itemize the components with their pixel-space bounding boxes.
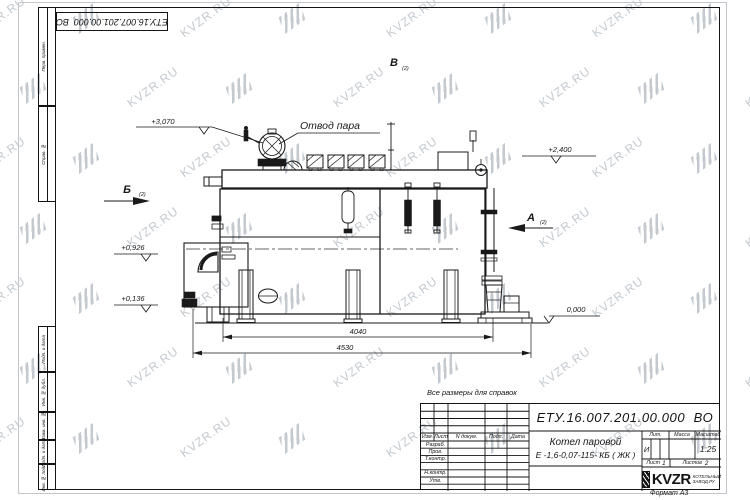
kvzr-emblem-icon (642, 471, 650, 488)
svg-text:Отвод пара: Отвод пара (300, 120, 360, 132)
manhole (258, 289, 278, 303)
sheets-value: 2 (705, 460, 709, 467)
elevation-mark-zero: 0,000 (544, 305, 600, 323)
burner-assembly (182, 243, 248, 322)
reference-note: Все размеры для справок (427, 388, 517, 397)
stamp-product-name: Котел паровой Е -1,6-0,07-115- КБ ( ЖК ) (529, 431, 642, 466)
svg-text:(2): (2) (139, 192, 146, 198)
dim-4040-value: 4040 (350, 327, 368, 336)
view-arrow-a: А (2) (508, 212, 553, 232)
svg-text:Б: Б (123, 184, 131, 196)
drawing-sheet: { "page": { "format_note": "Формат А3", … (0, 0, 750, 500)
stamp-row-tkontr: Т.контр. (421, 455, 448, 462)
steam-outlet-label: Отвод пара (279, 120, 380, 144)
feed-pump-unit (478, 276, 532, 323)
svg-text:+0,136: +0,136 (121, 294, 145, 303)
kvzr-sub-line2: ЗАВОД.РУ (693, 479, 715, 484)
stamp-lit-label: Лит. (642, 431, 669, 439)
elevation-mark-drum: +2,400 (522, 145, 596, 163)
stamp-mass-label: Масса (669, 431, 695, 439)
stamp-row-prov: Пров. (421, 448, 448, 455)
sheet-label: Лист (646, 460, 660, 466)
view-mark-v: В (2) (390, 57, 409, 72)
svg-text:0,000: 0,000 (567, 305, 587, 314)
level-indicators (342, 183, 441, 233)
elevation-mark-axis: +0,926 (114, 243, 158, 261)
stamp-sheets-cell: Листов 2 (670, 459, 721, 467)
view-arrow-b: Б (2) (104, 184, 150, 205)
svg-text:В: В (390, 57, 398, 69)
stamp-row-utv: Утв. (421, 477, 448, 484)
stamp-row-nkontr: Н.контр. (421, 470, 448, 477)
stamp-row-razrab: Разраб. (421, 441, 448, 448)
svg-text:(2): (2) (540, 220, 547, 226)
dim-4530-value: 4530 (337, 343, 355, 352)
stamp-scale-label: Масштаб (695, 431, 721, 439)
product-name-line2: Е -1,6-0,07-115- КБ ( ЖК ) (536, 450, 636, 460)
stamp-col-podp: Подп. (485, 433, 507, 441)
elevation-mark-low: +0,136 (114, 294, 158, 312)
stamp-sheet-cell: Лист 1 (642, 459, 670, 467)
rear-flue-ladder (481, 188, 497, 276)
stamp-doc-code: ЕТУ.16.007.201.00.000 ВО (529, 404, 721, 431)
svg-text:(2): (2) (402, 66, 409, 72)
stamp-col-list: Лист (434, 433, 448, 441)
format-note: Формат А3 (650, 490, 688, 497)
kvzr-logo-subtext: КОТЕЛЬНЫЙ ЗАВОД.РУ (693, 474, 721, 484)
sheets-label: Листов (683, 460, 702, 466)
stamp-scale-value: 1:25 (695, 439, 721, 459)
svg-text:+2,400: +2,400 (548, 145, 572, 154)
kvzr-logo-text: KVZR (652, 471, 691, 488)
dimension-4040: 4040 (223, 318, 493, 342)
sheet-value: 1 (662, 460, 666, 467)
svg-text:+3,070: +3,070 (151, 117, 175, 126)
stamp-col-data: Дата (507, 433, 529, 441)
stamp-col-ndocum: N докум. (448, 433, 485, 441)
steam-outlet-valve (244, 126, 286, 170)
steam-drum-band (222, 170, 487, 188)
product-name-line1: Котел паровой (550, 437, 622, 448)
title-block: Изм. Лист N докум. Подп. Дата Разраб. Пр… (420, 403, 720, 490)
svg-text:+0,926: +0,926 (121, 243, 145, 252)
stamp-col-izm: Изм. (421, 433, 434, 441)
stamp-logo-cell: KVZR КОТЕЛЬНЫЙ ЗАВОД.РУ (642, 467, 721, 491)
svg-text:А: А (526, 212, 535, 224)
stamp-lit-value: И (642, 439, 651, 459)
